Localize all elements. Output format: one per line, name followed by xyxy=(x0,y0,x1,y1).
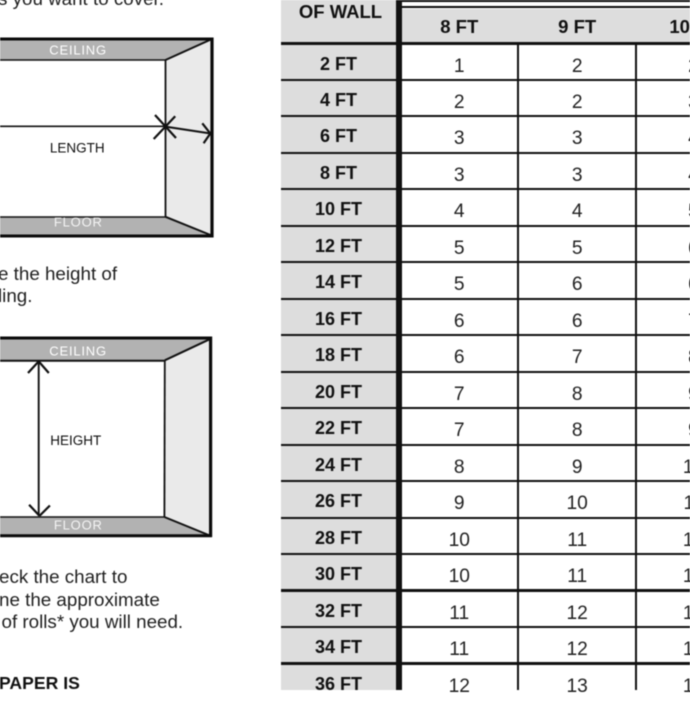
svg-text:LENGTH: LENGTH xyxy=(50,140,105,155)
svg-text:CEILING: CEILING xyxy=(49,43,107,58)
svg-text:FLOOR: FLOOR xyxy=(54,517,103,532)
svg-text:FLOOR: FLOOR xyxy=(54,215,103,230)
svg-text:CEILING: CEILING xyxy=(49,344,107,359)
svg-text:HEIGHT: HEIGHT xyxy=(50,433,101,448)
